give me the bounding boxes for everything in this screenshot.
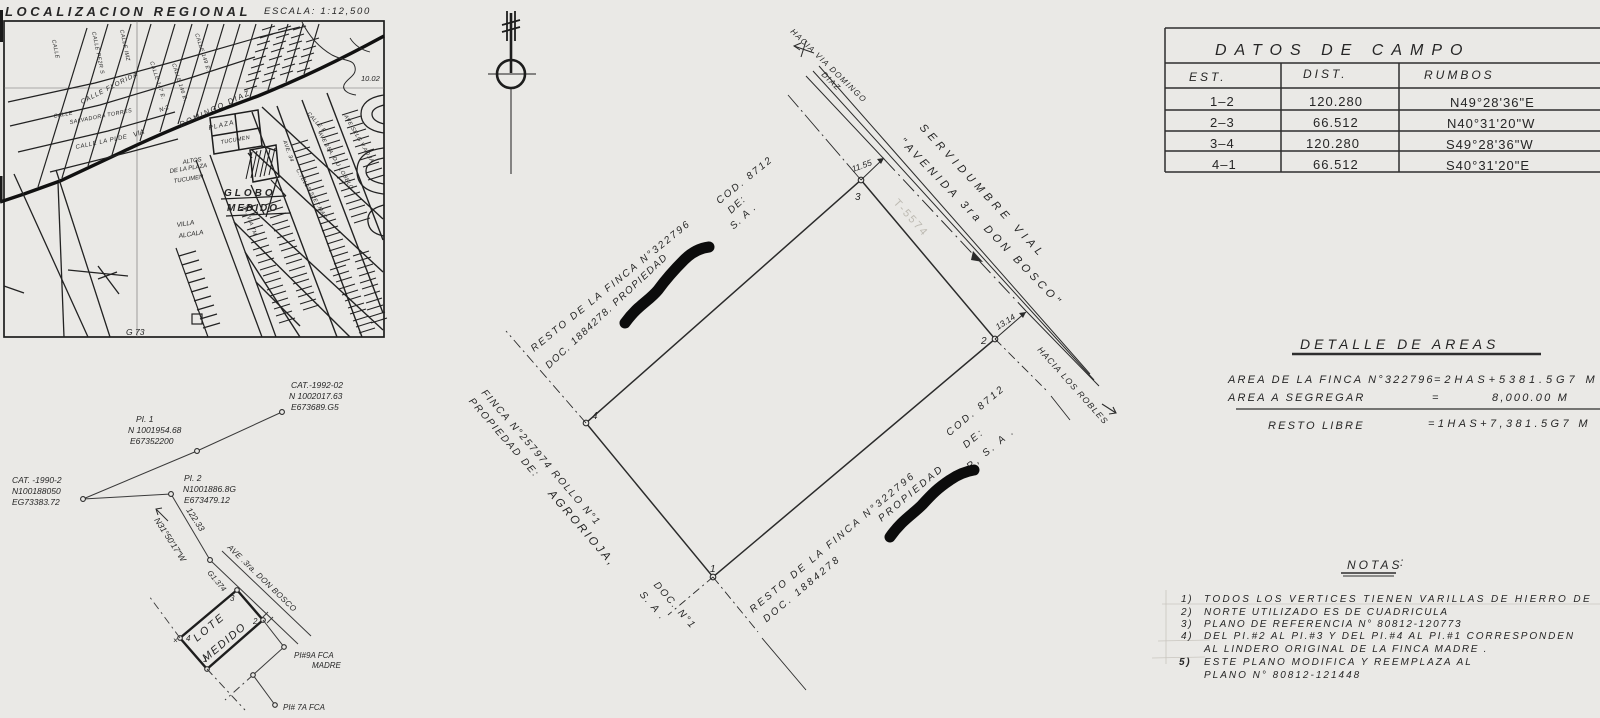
svg-text:2): 2) (1180, 607, 1193, 618)
svg-text:PLANO N° 80812-121448: PLANO N° 80812-121448 (1204, 670, 1361, 681)
svg-text:DETALLE DE AREAS: DETALLE DE AREAS (1300, 336, 1499, 352)
svg-text:ESTE PLANO MODIFICA Y REEM: ESTE PLANO MODIFICA Y REEMPLAZA AL (1204, 657, 1473, 668)
svg-text:66.512: 66.512 (1313, 157, 1359, 172)
svg-text:66.512: 66.512 (1313, 115, 1359, 130)
svg-text:PI. 2: PI. 2 (184, 473, 202, 483)
svg-text:10.02: 10.02 (361, 74, 381, 83)
svg-text:120.280: 120.280 (1309, 94, 1363, 109)
svg-text:CAT.-1992-02: CAT.-1992-02 (291, 380, 343, 390)
svg-text:DATOS DE CAMPO: DATOS DE CAMPO (1215, 42, 1470, 59)
svg-text:N 1001954.68: N 1001954.68 (128, 425, 182, 435)
svg-text:PLANO DE REFERENCIA N° 808: PLANO DE REFERENCIA N° 80812-120773 (1204, 619, 1462, 630)
svg-text:3: 3 (855, 192, 861, 203)
svg-text:2: 2 (980, 336, 987, 347)
svg-text:N40°31'20"W: N40°31'20"W (1447, 116, 1535, 131)
svg-text:NORTE UTILIZADO ES DE CUAD: NORTE UTILIZADO ES DE CUADRICULA (1204, 607, 1449, 618)
svg-text:RUMBOS: RUMBOS (1424, 68, 1495, 82)
svg-text:2–3: 2–3 (1210, 115, 1235, 130)
svg-text:2: 2 (252, 617, 258, 626)
svg-text:=: = (1432, 392, 1441, 404)
svg-text:AREA DE LA FINCA N°322796: AREA DE LA FINCA N°322796 (1227, 374, 1435, 386)
svg-text:1): 1) (1181, 594, 1193, 605)
svg-text:EG73383.72: EG73383.72 (12, 497, 60, 507)
svg-text:DEL PI.#2 AL PI.#3 Y DEL: DEL PI.#2 AL PI.#3 Y DEL PI.#4 AL PI.#1 … (1204, 631, 1575, 642)
svg-text:TODOS LOS VERTICES TIENEN: TODOS LOS VERTICES TIENEN VARILLAS DE HI… (1204, 594, 1592, 605)
svg-text:4: 4 (592, 411, 598, 422)
svg-text:CAT. -1990-2: CAT. -1990-2 (12, 475, 62, 485)
svg-text:DIST.: DIST. (1303, 67, 1348, 81)
svg-text:8,000.00 M: 8,000.00 M (1492, 392, 1569, 404)
svg-text:5): 5) (1179, 657, 1191, 668)
svg-text:AREA A SEGREGAR: AREA A SEGREGAR (1227, 392, 1366, 404)
svg-text:4): 4) (1181, 631, 1193, 642)
svg-text:PI# 7A FCA: PI# 7A FCA (283, 703, 325, 712)
svg-text:N100188050: N100188050 (12, 486, 61, 496)
svg-text:N49°28'36"E: N49°28'36"E (1450, 95, 1535, 110)
svg-text:AL LINDERO ORIGINAL DE LA: AL LINDERO ORIGINAL DE LA FINCA MADRE . (1203, 644, 1488, 655)
svg-text:PI#9A FCA: PI#9A FCA (294, 651, 334, 660)
svg-text:E673689.G5: E673689.G5 (291, 402, 339, 412)
svg-text:MADRE: MADRE (312, 661, 342, 670)
svg-text:LOCALIZACION REGIONAL: LOCALIZACION REGIONAL (5, 4, 251, 19)
svg-text:4–1: 4–1 (1212, 157, 1237, 172)
svg-text:E67352200: E67352200 (130, 436, 174, 446)
svg-text:S49°28'36"W: S49°28'36"W (1446, 137, 1534, 152)
svg-text::: : (1400, 555, 1406, 569)
svg-text:1–2: 1–2 (1210, 94, 1235, 109)
svg-text:N 1002017.63: N 1002017.63 (289, 391, 343, 401)
svg-text:ESCALA: 1:12,500: ESCALA: 1:12,500 (264, 6, 371, 17)
svg-text:EST.: EST. (1189, 70, 1227, 84)
svg-text:G 73: G 73 (126, 327, 145, 337)
svg-text:3: 3 (230, 594, 235, 603)
svg-text:E673479.12: E673479.12 (184, 495, 230, 505)
svg-text:PI. 1: PI. 1 (136, 414, 154, 424)
svg-text:NOTAS: NOTAS (1347, 558, 1402, 572)
svg-text:×: × (173, 636, 178, 645)
svg-text:RESTO LIBRE: RESTO LIBRE (1268, 420, 1365, 432)
svg-text:=2HAS+5381.5G7 M: =2HAS+5381.5G7 M (1434, 374, 1599, 386)
svg-text:3): 3) (1181, 619, 1193, 630)
svg-text:1: 1 (710, 564, 716, 575)
svg-text:3–4: 3–4 (1210, 136, 1235, 151)
svg-text:120.280: 120.280 (1306, 136, 1360, 151)
svg-text:S40°31'20"E: S40°31'20"E (1446, 158, 1530, 173)
svg-text:=1HAS+7,381.5G7 M: =1HAS+7,381.5G7 M (1428, 418, 1591, 430)
svg-text:N1001886.8G: N1001886.8G (183, 484, 236, 494)
svg-text:MEDIDO: MEDIDO (227, 203, 279, 214)
